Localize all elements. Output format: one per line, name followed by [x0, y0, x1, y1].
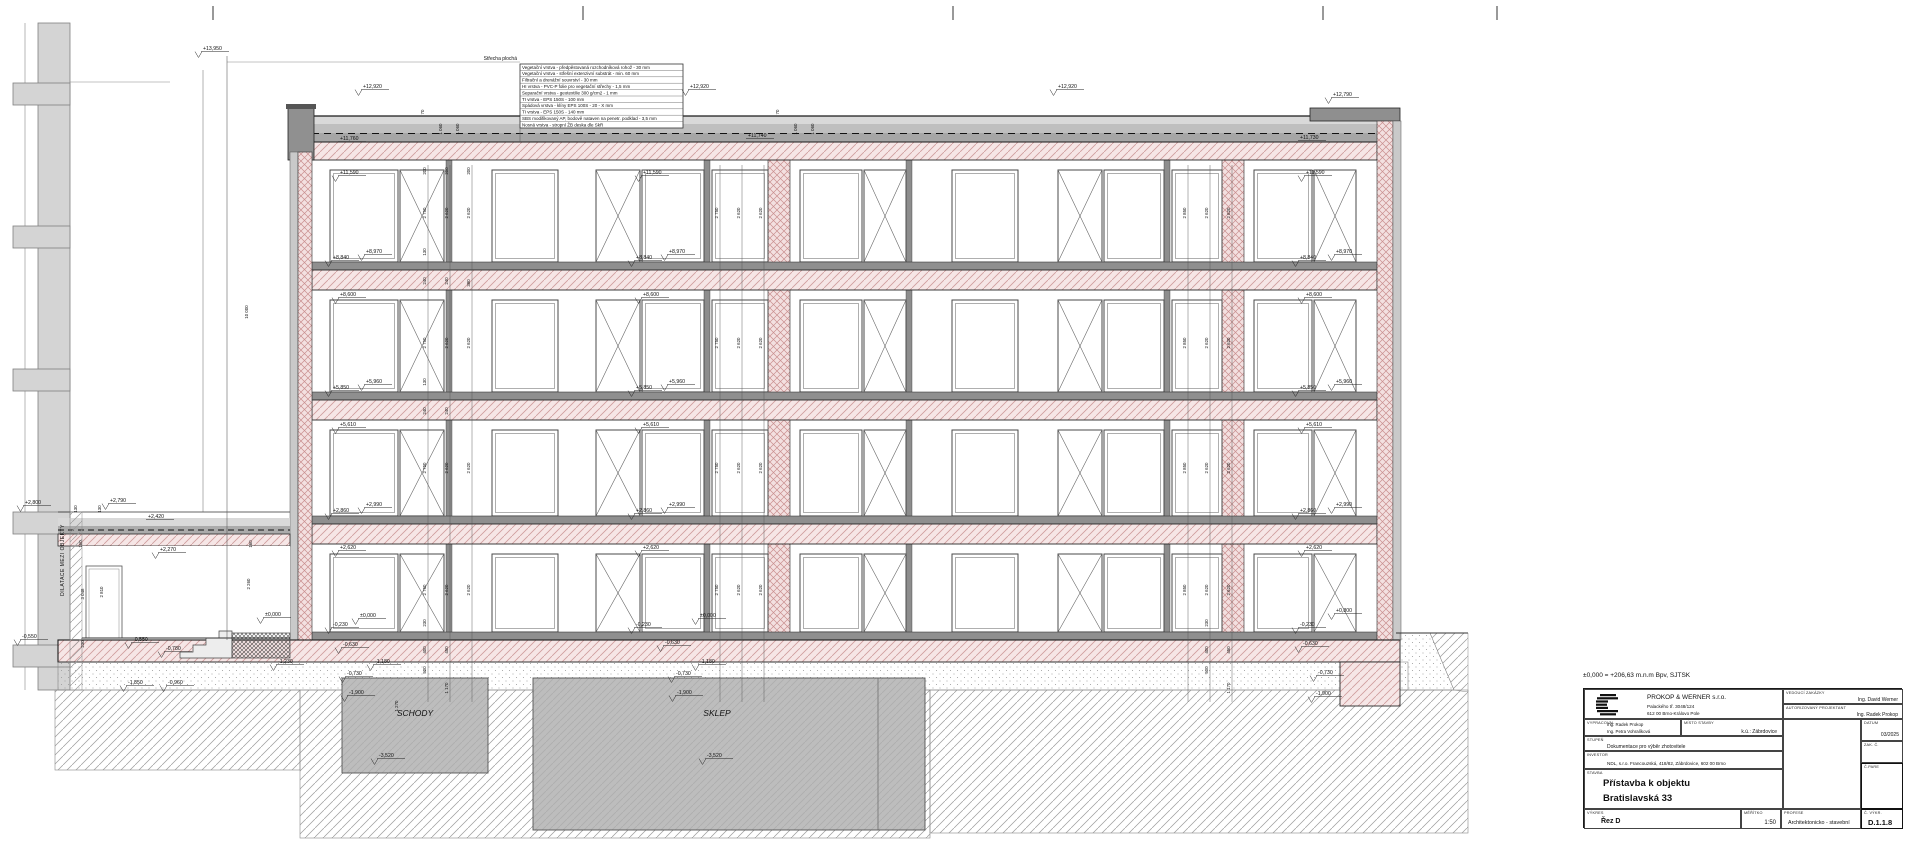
- elevation-label: +8,970: [669, 249, 685, 255]
- drawing-sheet: Vegetační vrstva - předpěstovaná rozchod…: [0, 0, 1920, 849]
- window-fixed: [800, 430, 862, 516]
- elevation-label: +8,840: [636, 255, 652, 261]
- window-fixed: [492, 430, 558, 516]
- dimension-label: 2 620: [758, 462, 763, 474]
- copy-number-label: Č.PARE: [1864, 765, 1879, 769]
- exterior-wall-right-render: [1393, 121, 1401, 640]
- neighbor-sill: [13, 369, 70, 391]
- dimension-label: 230: [1204, 619, 1209, 627]
- floor-finish-strip: [312, 392, 1377, 400]
- dimension-label: 200: [444, 167, 449, 175]
- expansion-joint: [70, 512, 82, 690]
- elevation-label: -1,900: [1316, 691, 1331, 697]
- dimension-label: 240: [422, 407, 427, 415]
- company-address-2: 612 00 Brno-Královo Pole: [1647, 711, 1700, 716]
- drawing-number-label: Č. VÝKR.: [1864, 811, 1882, 815]
- dimension-label: 2 850: [1182, 462, 1187, 474]
- dimension-label: 2 750: [422, 337, 427, 349]
- dimension-label: 2 620: [1226, 584, 1231, 596]
- elevation-label: ±0,000: [700, 613, 716, 619]
- dimension-label: 450: [1226, 646, 1231, 654]
- dimension-label: 10 000: [244, 305, 249, 319]
- legend-layer-text: TI vrstva - EPS 150S - 100 mm: [522, 97, 585, 102]
- site-label: MÍSTO STAVBY: [1684, 721, 1714, 725]
- copy-number-cell: Č.PARE: [1861, 763, 1903, 809]
- window-fixed: [1104, 430, 1164, 516]
- drawn-by-cell: VYPRACOVAL Ing. Radek Prokop Ing. Petra …: [1584, 719, 1681, 736]
- investor-label: INVESTOR: [1587, 753, 1608, 757]
- drawing-number-value: D.1.1.8: [1868, 818, 1892, 827]
- window-fixed: [1172, 554, 1222, 632]
- drawing-name-value: Řez D: [1601, 818, 1620, 825]
- elevation-label: +11,740: [748, 133, 767, 139]
- elevation-label: +8,970: [1336, 249, 1352, 255]
- floor-finish-strip: [312, 632, 1377, 640]
- elevation-label: +2,860: [333, 508, 349, 514]
- elevation-label: -1,850: [128, 680, 143, 686]
- elevation-label: +0,800: [1336, 608, 1352, 614]
- dimension-label: 2 750: [422, 584, 427, 596]
- elevation-label: +2,790: [110, 498, 126, 504]
- elevation-label: -0,230: [636, 622, 651, 628]
- dimension-label: 70: [775, 109, 780, 114]
- dimension-label: 2 620: [736, 337, 741, 349]
- dimension-label: 2 620: [736, 207, 741, 219]
- elevation-label: +8,600: [643, 292, 659, 298]
- company-address-1: Palackého tř. 3048/124: [1647, 704, 1694, 709]
- dimension-label: 2 620: [758, 584, 763, 596]
- window-fixed: [952, 430, 1018, 516]
- window-fixed: [492, 170, 558, 262]
- exterior-wall-right: [1377, 121, 1393, 640]
- elevation-label: +2,270: [160, 547, 176, 553]
- dimension-label: 230: [80, 640, 85, 648]
- profession-cell: PROFESE Architektonicko - stavební: [1781, 809, 1861, 829]
- window-fixed: [330, 300, 398, 392]
- dimension-label: 1 170: [444, 682, 449, 694]
- elevation-label: +12,920: [1058, 84, 1077, 90]
- scale-cell: MĚŘÍTKO 1:50: [1741, 809, 1781, 829]
- elevation-label: +2,990: [366, 502, 382, 508]
- window-fixed: [800, 300, 862, 392]
- dimension-label: 2 750: [714, 207, 719, 219]
- elevation-label: -3,520: [379, 753, 394, 759]
- dimension-label: 130: [422, 248, 427, 256]
- dimension-label: 2 850: [1182, 207, 1187, 219]
- elevation-label: +11,760: [340, 136, 359, 142]
- window-fixed: [492, 554, 558, 632]
- elevation-label: -0,630: [1303, 641, 1318, 647]
- dimension-label: 500: [422, 666, 427, 674]
- dimension-label: 2 620: [444, 337, 449, 349]
- project-lead-cell: VEDOUCÍ ZAKÁZKY Ing. David Werner: [1783, 689, 1903, 704]
- window-fixed: [800, 170, 862, 262]
- floor-slab: [312, 400, 1377, 420]
- dimension-label: 160: [78, 540, 83, 548]
- window-fixed: [1254, 300, 1312, 392]
- elevation-label: +12,790: [1333, 92, 1352, 98]
- dimension-label: 1 060: [810, 123, 815, 135]
- dimension-label: 2 620: [466, 207, 471, 219]
- attic-parapet-right: [1310, 108, 1400, 121]
- dimension-label: 1 060: [455, 123, 460, 135]
- elevation-label: -0,730: [676, 671, 691, 677]
- elevation-label: +2,620: [340, 545, 356, 551]
- floor-slab: [312, 270, 1377, 290]
- elevation-label: -1,180: [375, 659, 390, 665]
- dimension-label: 70: [420, 109, 425, 114]
- earth-right: [930, 690, 1468, 833]
- project-title-label: STAVBA: [1587, 771, 1603, 775]
- drawing-name-cell: VÝKRES Řez D: [1584, 809, 1741, 829]
- dimension-label: 2 620: [1204, 337, 1209, 349]
- underground-cellar-box: [533, 678, 925, 830]
- elevation-label: -0,550: [133, 637, 148, 643]
- elevation-label: -0,630: [343, 642, 358, 648]
- dimension-label: 160: [248, 540, 253, 548]
- window-fixed: [1104, 554, 1164, 632]
- dimension-label: 500: [1204, 666, 1209, 674]
- elevation-label: +5,610: [340, 422, 356, 428]
- dimension-label: 2 620: [758, 207, 763, 219]
- dimension-label: 2 260: [246, 578, 251, 590]
- scale-value: 1:50: [1764, 820, 1776, 826]
- drawing-number-cell: Č. VÝKR. D.1.1.8: [1861, 809, 1903, 829]
- elevation-label: +8,970: [366, 249, 382, 255]
- annex-door: [86, 566, 122, 638]
- legend-title: Střecha plochá: [484, 56, 518, 62]
- drawn-by-name-1: Ing. Radek Prokop: [1607, 722, 1643, 727]
- dimension-label: 2 620: [466, 462, 471, 474]
- dimension-label: 2 620: [1226, 462, 1231, 474]
- elevation-label: -0,780: [166, 646, 181, 652]
- elevation-label: +2,620: [1306, 545, 1322, 551]
- underground-stairs-box: [342, 678, 488, 773]
- elevation-label: +13,950: [203, 46, 222, 52]
- annex-floor-block: [232, 633, 290, 658]
- window-fixed: [1104, 300, 1164, 392]
- stage-cell: STUPEŇ Dokumentace pro výběr zhotovitele: [1584, 736, 1783, 751]
- dimension-label: 240: [422, 277, 427, 285]
- elevation-label: +11,730: [1300, 135, 1319, 141]
- dimension-label: 2 620: [1204, 584, 1209, 596]
- order-number-label: ZAK. Č.: [1864, 743, 1879, 747]
- floor-finish-strip: [312, 262, 1377, 270]
- elevation-label: -0,730: [1318, 670, 1333, 676]
- dimension-label: 2 750: [422, 207, 427, 219]
- project-lead-value: Ing. David Werner: [1858, 697, 1898, 703]
- elevation-label: -1,900: [677, 690, 692, 696]
- cellar-room-label: SKLEP: [703, 708, 731, 718]
- elevation-label: -0,630: [665, 640, 680, 646]
- site-value: k.ú.: Zábrdovice: [1741, 729, 1777, 735]
- dimension-label: 130: [422, 378, 427, 386]
- dimension-label: 450: [444, 646, 449, 654]
- window-fixed: [1254, 170, 1312, 262]
- authorized-designer-cell: AUTORIZOVANÝ PROJEKTANT Ing. Radek Proko…: [1783, 704, 1903, 719]
- company-name: PROKOP & WERNER s.r.o.: [1647, 694, 1726, 701]
- roof-slab: [312, 142, 1377, 160]
- elevation-label: -1,230: [278, 659, 293, 665]
- title-block-table: PROKOP & WERNER s.r.o. Palackého tř. 304…: [1583, 688, 1902, 828]
- window-fixed: [330, 554, 398, 632]
- dimension-label: 2 750: [714, 584, 719, 596]
- window-fixed: [330, 430, 398, 516]
- elevation-label: -0,550: [22, 634, 37, 640]
- dimension-label: 1 170: [1226, 682, 1231, 694]
- elevation-label: +11,590: [643, 170, 662, 176]
- dimension-label: 130: [97, 505, 102, 513]
- scale-label: MĚŘÍTKO: [1744, 811, 1763, 815]
- elevation-label: +2,620: [643, 545, 659, 551]
- dimension-label: 2 620: [466, 337, 471, 349]
- project-lead-label: VEDOUCÍ ZAKÁZKY: [1786, 691, 1825, 695]
- date-value: 03/2025: [1881, 732, 1899, 738]
- spare-cell: [1783, 719, 1861, 809]
- dimension-label: 2 620: [1226, 207, 1231, 219]
- window-fixed: [492, 300, 558, 392]
- dimension-label: 2 620: [1226, 337, 1231, 349]
- elevation-label: +12,920: [690, 84, 709, 90]
- authorized-designer-value: Ing. Radek Prokop: [1857, 712, 1898, 718]
- legend-layer-text: HI vrstva - PVC-P folie pro vegetační st…: [522, 84, 630, 89]
- elevation-label: +2,860: [1300, 508, 1316, 514]
- window-fixed: [952, 300, 1018, 392]
- title-block: ±0,000 = +206,63 m.n.m Bpv, SJTSK PROKOP…: [1583, 672, 1902, 834]
- window-fixed: [1172, 170, 1222, 262]
- date-label: DATUM: [1864, 721, 1878, 725]
- dimension-label: 3 048: [80, 588, 85, 600]
- elevation-label: -0,730: [347, 671, 362, 677]
- elevation-label: +2,860: [636, 508, 652, 514]
- elevation-label: +2,990: [1336, 502, 1352, 508]
- elevation-label: ±0,000: [360, 613, 376, 619]
- dimension-label: 2 750: [714, 337, 719, 349]
- elevation-label: +8,840: [333, 255, 349, 261]
- project-title-line-1: Přístavba k objektu: [1603, 778, 1690, 789]
- investor-cell: INVESTOR NDL, s.r.o. Francouzská, 418/82…: [1584, 751, 1783, 769]
- datum-note: ±0,000 = +206,63 m.n.m Bpv, SJTSK: [1583, 672, 1690, 679]
- stage-label: STUPEŇ: [1587, 738, 1604, 742]
- elevation-label: -1,180: [700, 659, 715, 665]
- exterior-wall-left: [298, 152, 312, 640]
- elevation-label: +5,850: [636, 385, 652, 391]
- elevation-label: +5,850: [1300, 385, 1316, 391]
- elevation-label: +5,960: [366, 379, 382, 385]
- elevation-label: -0,960: [168, 680, 183, 686]
- profession-label: PROFESE: [1784, 811, 1804, 815]
- elevation-label: +8,600: [340, 292, 356, 298]
- dimension-label: 1 060: [793, 123, 798, 135]
- expansion-joint-label: DILATACE MEZI OBJEKTY: [60, 524, 66, 596]
- window-fixed: [1172, 300, 1222, 392]
- elevation-label: +2,800: [25, 500, 41, 506]
- dimension-label: 2 850: [1182, 584, 1187, 596]
- dimension-label: 2 620: [444, 584, 449, 596]
- order-number-cell: ZAK. Č.: [1861, 741, 1903, 763]
- elevation-label: +2,990: [669, 502, 685, 508]
- dimension-label: 2 620: [466, 584, 471, 596]
- profession-value: Architektonicko - stavební: [1788, 820, 1850, 826]
- dimension-label: 2 750: [714, 462, 719, 474]
- dimension-label: 240: [444, 277, 449, 285]
- elevation-label: +5,960: [669, 379, 685, 385]
- dimension-label: 380: [466, 279, 471, 287]
- dimension-label: 230: [422, 619, 427, 627]
- authorized-designer-label: AUTORIZOVANÝ PROJEKTANT: [1786, 706, 1846, 710]
- window-fixed: [800, 554, 862, 632]
- window-fixed: [1172, 430, 1222, 516]
- project-title-cell: STAVBA Přístavba k objektu Bratislavská …: [1584, 769, 1783, 809]
- elevation-label: +11,590: [340, 170, 359, 176]
- legend-layer-text: Filtrační a drenážní souvrství - 30 mm: [522, 78, 598, 83]
- elevation-label: -1,900: [349, 690, 364, 696]
- floor-slab: [312, 524, 1377, 544]
- window-fixed: [1254, 554, 1312, 632]
- earth-left: [55, 690, 300, 770]
- elevation-label: +5,960: [1336, 379, 1352, 385]
- dimension-label: 2 620: [758, 337, 763, 349]
- dimension-label: 2 620: [444, 462, 449, 474]
- dimension-label: 400: [1204, 646, 1209, 654]
- elevation-label: -0,230: [1300, 622, 1315, 628]
- elevation-label: ±0,000: [265, 612, 281, 618]
- stairs-room-label: SCHODY: [397, 708, 435, 718]
- dimension-label: 400: [422, 646, 427, 654]
- window-fixed: [952, 554, 1018, 632]
- dimension-label: 200: [422, 167, 427, 175]
- elevation-label: -0,230: [333, 622, 348, 628]
- foundation-step: [1340, 662, 1400, 706]
- dimension-label: 2 620: [736, 462, 741, 474]
- dimension-label: 2 850: [1182, 337, 1187, 349]
- legend-layer-text: Vegetační vrstva - předpěstovaná rozchod…: [522, 65, 650, 70]
- dimension-label: 130: [73, 505, 78, 513]
- site-cell: MÍSTO STAVBY k.ú.: Zábrdovice: [1681, 719, 1783, 736]
- legend-layer-text: TI vrstva - EPS 150S - 140 mm: [522, 110, 585, 115]
- investor-value: NDL, s.r.o. Francouzská, 418/82, Zábrdov…: [1607, 761, 1726, 766]
- dimension-label: 2 620: [1204, 207, 1209, 219]
- neighbor-sill: [13, 83, 70, 105]
- dimension-label: 2 620: [444, 207, 449, 219]
- elevation-label: +5,610: [643, 422, 659, 428]
- elevation-label: +8,840: [1300, 255, 1316, 261]
- window-fixed: [642, 554, 704, 632]
- window-fixed: [330, 170, 398, 262]
- elevation-label: +11,590: [1306, 170, 1325, 176]
- dimension-label: 200: [466, 167, 471, 175]
- dimension-label: 240: [444, 407, 449, 415]
- dimension-label: 2 750: [422, 462, 427, 474]
- project-title-line-2: Bratislavská 33: [1603, 793, 1672, 804]
- window-fixed: [952, 170, 1018, 262]
- legend-layer-text: Vegetační vrstva - střešní extenzivní su…: [522, 71, 639, 76]
- elevation-label: +2,420: [148, 514, 164, 520]
- window-fixed: [1254, 430, 1312, 516]
- elevation-label: +8,600: [1306, 292, 1322, 298]
- drawn-by-name-2: Ing. Petra Vohralíková: [1607, 729, 1650, 734]
- elevation-label: -3,520: [707, 753, 722, 759]
- legend-layer-text: Separační vrstva - geotextilie 300 g/cm2…: [522, 90, 618, 95]
- drawing-name-label: VÝKRES: [1587, 811, 1604, 815]
- legend-layer-text: Nosná vrstva - stropní ŽB deska dle SkR: [522, 120, 604, 127]
- floor-finish-strip: [312, 516, 1377, 524]
- legend-layer-text: SBS modifikovaný AP, bodově nataven na p…: [522, 116, 657, 121]
- elevation-label: +5,610: [1306, 422, 1322, 428]
- legend-layer-text: Spádová vrstva - klíny EPS 100S - 20 - X…: [522, 103, 613, 108]
- dimension-label: 2 620: [1204, 462, 1209, 474]
- stage-value: Dokumentace pro výběr zhotovitele: [1607, 744, 1685, 750]
- dimension-label: 1 060: [438, 123, 443, 135]
- exterior-wall-left-render: [290, 152, 298, 640]
- dimension-label: 2 620: [736, 584, 741, 596]
- window-fixed: [1104, 170, 1164, 262]
- elevation-label: +12,920: [363, 84, 382, 90]
- neighbor-sill: [13, 226, 70, 248]
- annex-roof-slab: [58, 534, 290, 546]
- elevation-label: +5,850: [333, 385, 349, 391]
- company-logo-icon: [1591, 693, 1625, 717]
- company-cell: PROKOP & WERNER s.r.o. Palackého tř. 304…: [1584, 689, 1783, 719]
- dimension-label: 2 810: [99, 586, 104, 598]
- date-cell: DATUM 03/2025: [1861, 719, 1903, 741]
